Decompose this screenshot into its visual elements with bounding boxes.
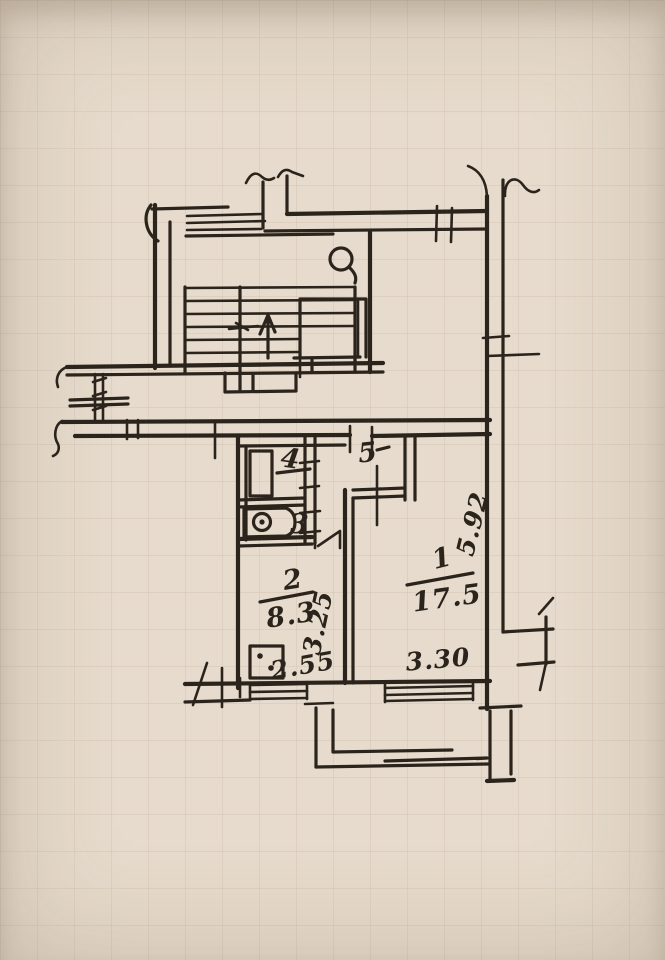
balcony [305, 703, 488, 767]
staircase-block [57, 166, 539, 437]
column-hatch [93, 374, 106, 420]
dim-kitchen-width: 2.55 [267, 646, 337, 686]
hall-bottom-wall [353, 488, 405, 498]
room2-number-label: 2 [280, 563, 305, 597]
hall-right-wall [405, 436, 415, 500]
wall-ticks [127, 420, 215, 458]
apartment-wall-bottom [185, 681, 490, 684]
right-pilaster [503, 598, 554, 690]
graph-paper-background: 4 5 3 2 8.3 1 17.5 3.25 5.92 2.55 3.30 [0, 0, 665, 960]
dim-room1-width: 3.30 [404, 642, 471, 677]
windows [250, 682, 473, 702]
wall-right-exterior [468, 166, 539, 437]
floor-plan-drawing: 4 5 3 2 8.3 1 17.5 3.25 5.92 2.55 3.30 [0, 0, 665, 960]
wall-break-hook-left [57, 367, 67, 387]
kitchen-top-wall-inner [238, 544, 312, 546]
room5-number-label: 5 [356, 437, 379, 470]
wall-room4-room3 [238, 498, 305, 507]
room3-number-label: 3 [290, 509, 310, 540]
bottom-right-pillar [477, 706, 521, 781]
stair-exit-stub [225, 373, 296, 392]
kitchen-door-leaf [315, 531, 340, 548]
chute-circle-symbol [330, 248, 356, 283]
window-staircase [186, 214, 333, 236]
wall-stub [70, 398, 128, 406]
window-kitchen [250, 682, 307, 700]
balcony-railing [333, 710, 487, 761]
toilet-fixture [244, 508, 295, 537]
window-room1 [385, 682, 473, 702]
balcony-bottom-wall [316, 764, 488, 767]
wall-top [265, 206, 487, 242]
apartment-walls [185, 436, 554, 781]
room5-dash [377, 447, 389, 450]
room1-area-label: 17.5 [410, 578, 483, 618]
balcony-top-stub [305, 703, 333, 704]
bathtub-fixture [250, 451, 272, 496]
wall-break-hook-lower-left [53, 421, 62, 456]
vent-stub [246, 170, 303, 228]
